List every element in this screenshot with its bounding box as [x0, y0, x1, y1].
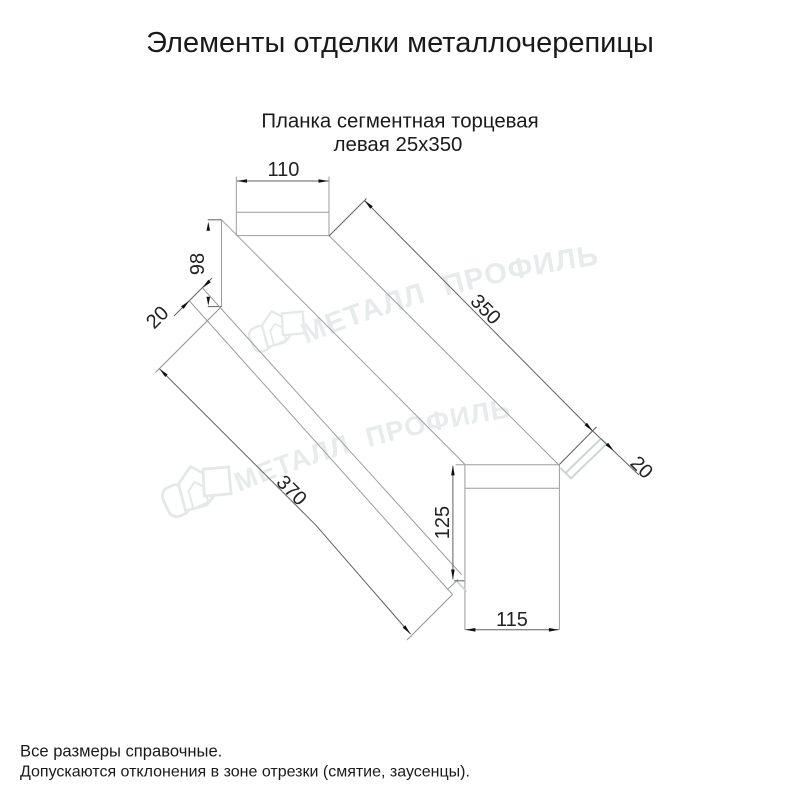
svg-text:Допускаются отклонения в зоне: Допускаются отклонения в зоне отрезки (с…: [20, 764, 470, 781]
svg-text:110: 110: [268, 159, 300, 181]
svg-text:Элементы отделки металлочерепи: Элементы отделки металлочерепицы: [146, 27, 654, 59]
svg-text:Все размеры справочные.: Все размеры справочные.: [20, 742, 222, 761]
svg-text:98: 98: [187, 253, 209, 275]
svg-text:левая 25х350: левая 25х350: [334, 134, 463, 156]
svg-text:Планка сегментная торцевая: Планка сегментная торцевая: [261, 111, 538, 133]
svg-text:115: 115: [496, 609, 528, 631]
svg-text:125: 125: [432, 506, 454, 539]
